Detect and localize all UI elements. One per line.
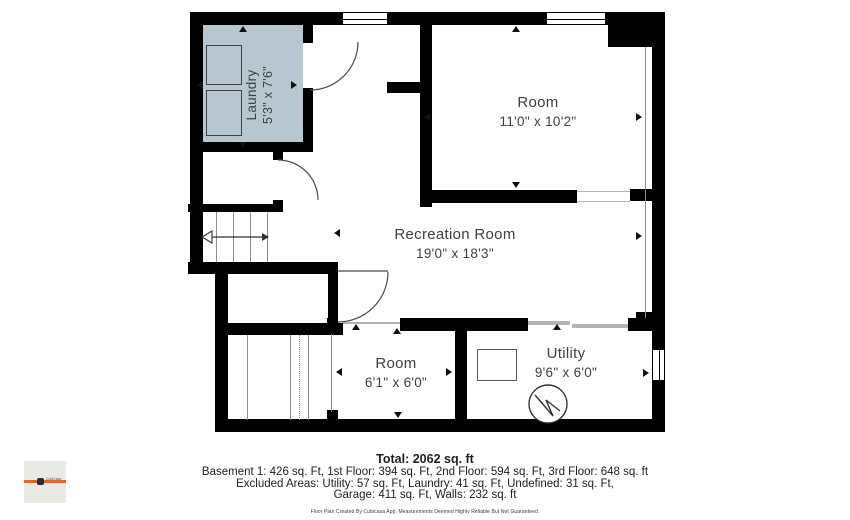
window bbox=[547, 12, 605, 25]
disclaimer-text: Floor Plan Created By Cubicasa App. Meas… bbox=[0, 509, 850, 515]
passage-opening bbox=[343, 322, 400, 324]
room-name: Room bbox=[336, 355, 456, 372]
cubicasa-logo: CubiCasa bbox=[24, 461, 66, 503]
room-name: Laundry bbox=[244, 20, 259, 170]
wall bbox=[455, 325, 467, 425]
door-arc bbox=[338, 272, 388, 322]
window bbox=[343, 12, 387, 25]
logo-mark-icon bbox=[37, 478, 44, 485]
wall-face-line bbox=[645, 47, 646, 318]
floor-areas-text: Basement 1: 426 sq. Ft, 1st Floor: 394 s… bbox=[0, 467, 850, 479]
logo-brand-text: CubiCasa bbox=[46, 478, 61, 482]
window bbox=[652, 350, 665, 380]
passage-opening bbox=[577, 191, 630, 192]
room-dimensions: 5'3" x 7'6" bbox=[261, 20, 275, 170]
room-dimensions: 11'0" x 10'2" bbox=[438, 114, 638, 129]
door-arc bbox=[278, 160, 318, 200]
passage-opening bbox=[528, 321, 570, 325]
room-name: Recreation Room bbox=[325, 226, 585, 243]
room-name: Room bbox=[438, 94, 638, 111]
stair-tread bbox=[216, 212, 217, 262]
stair-line bbox=[308, 335, 309, 420]
wall bbox=[215, 419, 665, 432]
stair-line bbox=[290, 335, 291, 420]
wall bbox=[188, 262, 338, 274]
wall-stub bbox=[387, 82, 420, 93]
room-label-utility: Utility 9'6" x 6'0" bbox=[486, 345, 646, 380]
passage-opening bbox=[331, 334, 332, 412]
door-opening bbox=[303, 43, 313, 88]
room-label-room-top: Room 11'0" x 10'2" bbox=[438, 94, 638, 129]
wall bbox=[228, 323, 343, 335]
area-summary: Total: 2062 sq. ft Basement 1: 426 sq. F… bbox=[0, 452, 850, 515]
floor-plan-page: Laundry 5'3" x 7'6" Room 11'0" x 10'2" R… bbox=[0, 0, 850, 520]
water-heater-icon bbox=[529, 385, 567, 423]
wall bbox=[420, 25, 432, 207]
excluded-areas-text-2: Garage: 411 sq. Ft, Walls: 232 sq. ft bbox=[0, 490, 850, 502]
room-name: Utility bbox=[486, 345, 646, 362]
stair-edge bbox=[267, 212, 268, 262]
wall bbox=[420, 190, 577, 203]
wall-stub bbox=[327, 318, 338, 334]
stair-dashed-line bbox=[299, 335, 300, 420]
wall bbox=[215, 262, 228, 432]
stair-line bbox=[247, 335, 248, 420]
total-area-text: Total: 2062 sq. ft bbox=[0, 452, 850, 466]
passage-opening bbox=[577, 201, 630, 202]
stair-tread bbox=[250, 212, 251, 262]
stair-tread bbox=[233, 212, 234, 262]
stairs-direction-arrow bbox=[202, 231, 269, 243]
room-label-room-bottom: Room 6'1" x 6'0" bbox=[336, 355, 456, 390]
room-label-recreation: Recreation Room 19'0" x 18'3" bbox=[325, 226, 585, 261]
room-dimensions: 19'0" x 18'3" bbox=[325, 246, 585, 261]
room-dimensions: 9'6" x 6'0" bbox=[486, 365, 646, 380]
wall-corner-notch bbox=[608, 25, 660, 47]
wall-stub bbox=[327, 410, 338, 424]
wall bbox=[188, 204, 280, 212]
wall-stub bbox=[630, 189, 652, 201]
room-label-laundry: Laundry 5'3" x 7'6" bbox=[237, 20, 281, 170]
passage-opening bbox=[572, 324, 628, 328]
room-dimensions: 6'1" x 6'0" bbox=[336, 375, 456, 390]
wall bbox=[190, 12, 203, 274]
door-arc bbox=[310, 42, 358, 90]
